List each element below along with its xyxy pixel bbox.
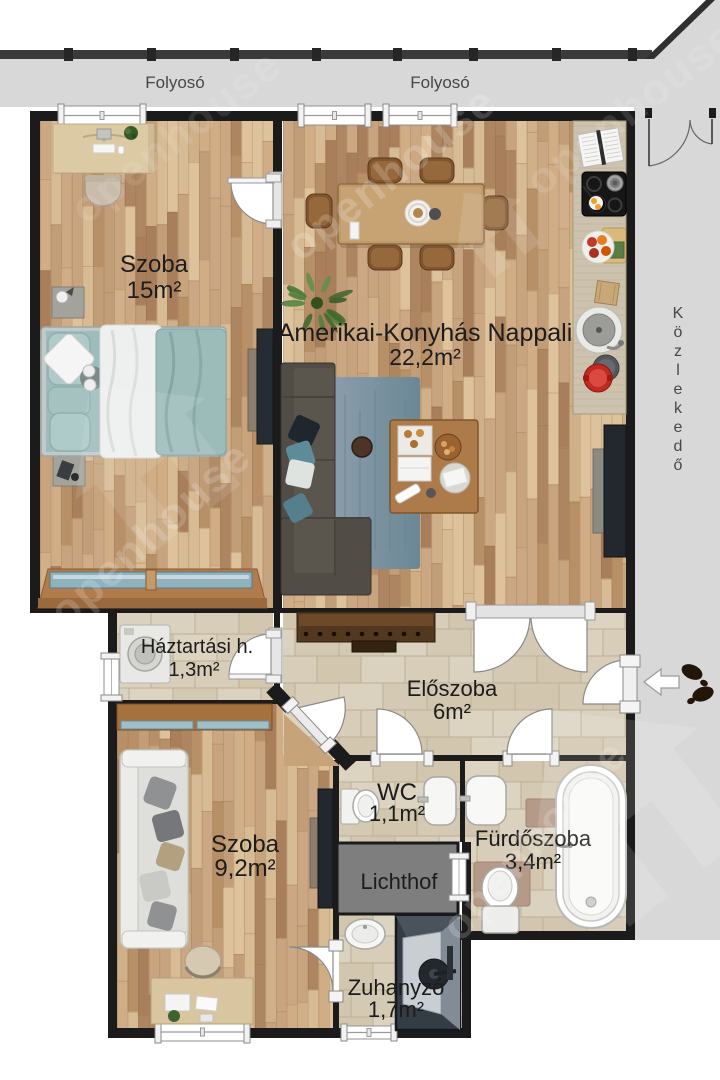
svg-text:z: z bbox=[674, 343, 682, 360]
svg-text:Szoba: Szoba bbox=[211, 831, 280, 858]
svg-text:l: l bbox=[676, 362, 680, 379]
svg-text:ö: ö bbox=[674, 324, 683, 341]
svg-text:k: k bbox=[674, 400, 683, 417]
svg-text:d: d bbox=[674, 438, 683, 455]
svg-text:Lichthof: Lichthof bbox=[360, 869, 438, 894]
svg-text:1,1m²: 1,1m² bbox=[369, 801, 425, 826]
svg-text:6m²: 6m² bbox=[433, 699, 471, 724]
svg-text:K: K bbox=[673, 305, 684, 322]
svg-text:22,2m²: 22,2m² bbox=[389, 344, 461, 370]
svg-text:Szoba: Szoba bbox=[120, 251, 189, 278]
svg-text:e: e bbox=[674, 381, 683, 398]
svg-text:9,2m²: 9,2m² bbox=[214, 855, 275, 882]
svg-text:15m²: 15m² bbox=[127, 277, 182, 304]
svg-text:e: e bbox=[674, 419, 683, 436]
svg-text:ő: ő bbox=[674, 457, 683, 474]
svg-text:1,7m²: 1,7m² bbox=[368, 997, 424, 1022]
svg-text:Előszoba: Előszoba bbox=[407, 676, 498, 701]
svg-text:1,3m²: 1,3m² bbox=[168, 659, 219, 681]
svg-text:Amerikai-Konyhás Nappali: Amerikai-Konyhás Nappali bbox=[278, 319, 573, 347]
svg-text:Háztartási h.: Háztartási h. bbox=[141, 636, 253, 658]
